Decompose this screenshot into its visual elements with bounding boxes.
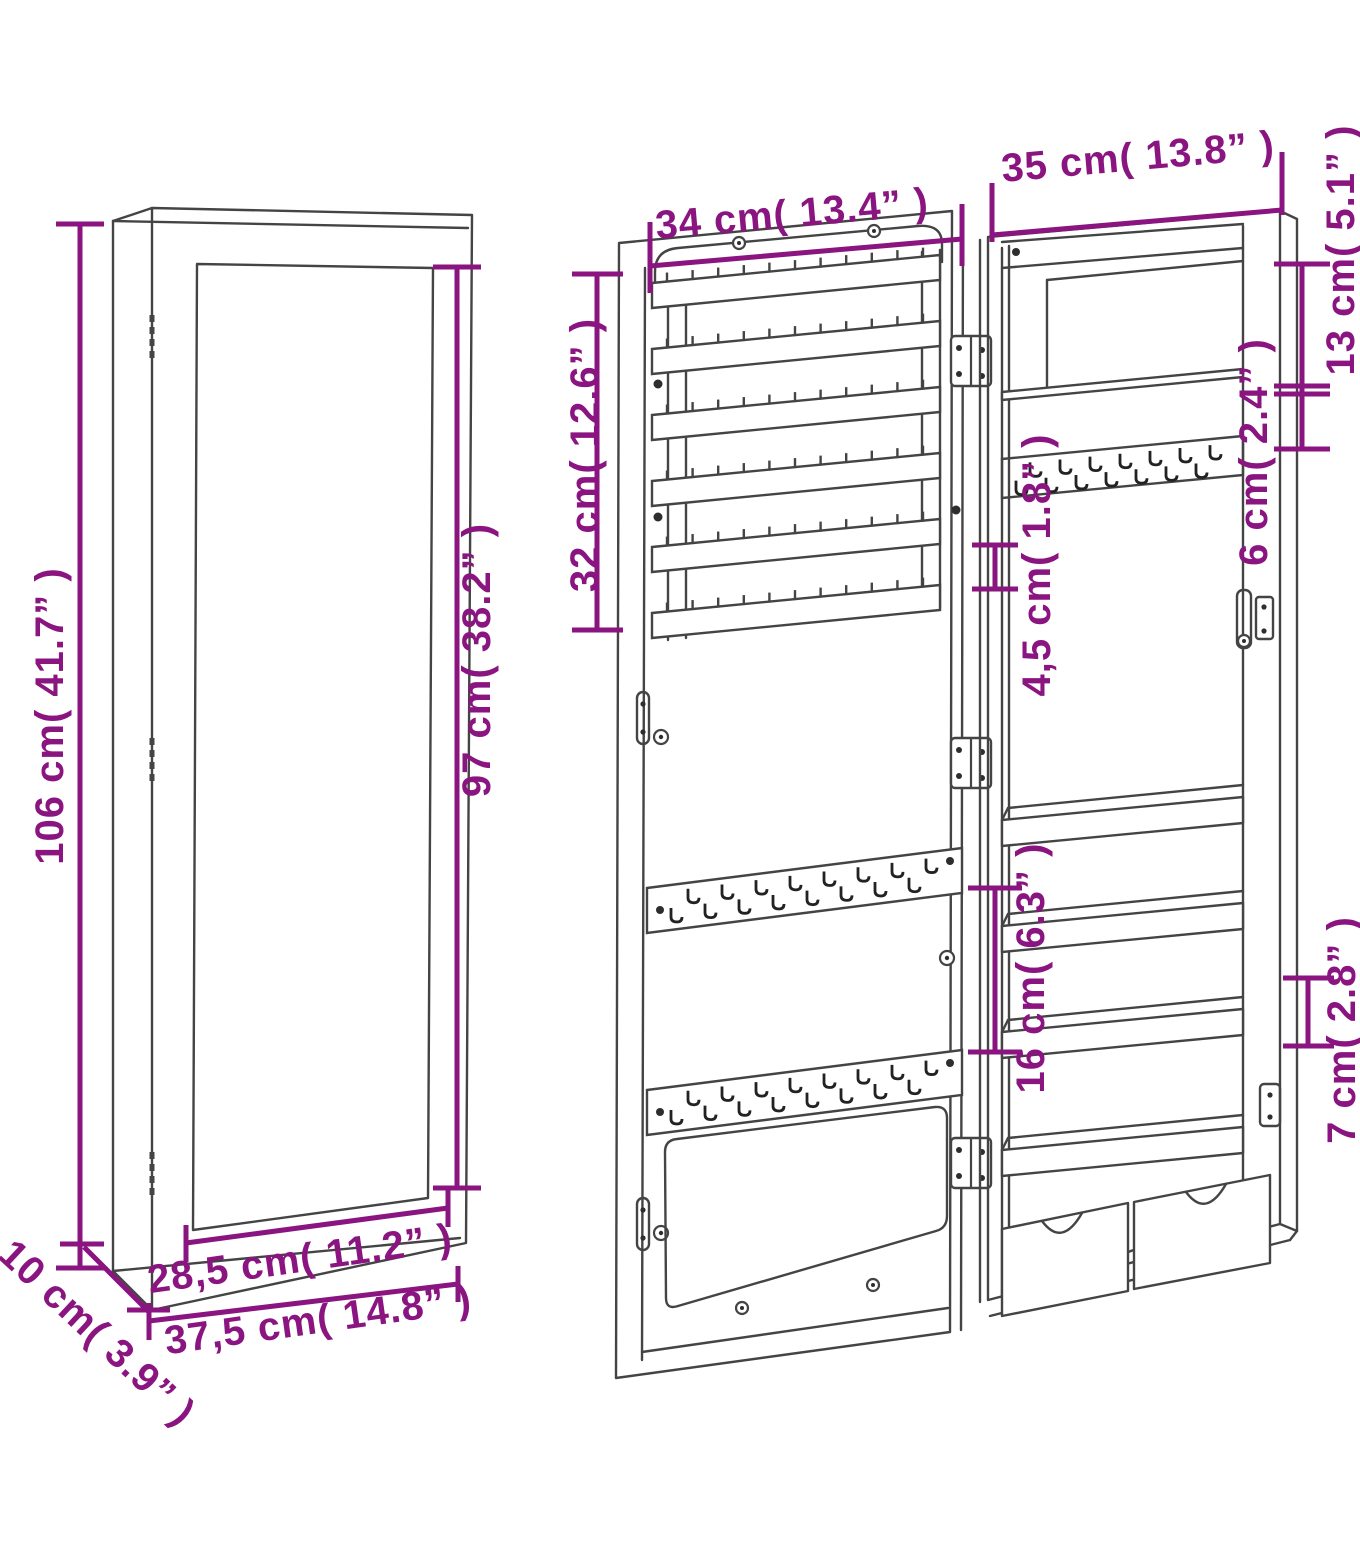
dimension-label-overall-height: 106 cm( 41.7” ) [30, 567, 70, 864]
earring-rack-rails [668, 250, 940, 640]
cabinet-front-face [152, 208, 472, 1310]
screw-icon [654, 380, 663, 389]
latch-lock [1260, 1084, 1280, 1126]
screw-icon [952, 506, 961, 515]
screw-icon [946, 1059, 954, 1067]
dimension-label-bottom-shelf: 7 cm( 2.8” ) [1322, 916, 1360, 1144]
earring-bar-rack [652, 248, 940, 638]
screw-icon [946, 857, 954, 865]
closed-cabinet-view [113, 208, 472, 1310]
dimension-label-shelf-gap: 6 cm( 2.4” ) [1234, 338, 1274, 566]
drawers [1002, 1175, 1270, 1316]
screw-icon [654, 513, 663, 522]
screw-icon [656, 906, 664, 914]
dimension-label-top-compartment: 13 cm( 5.1” ) [1321, 125, 1360, 376]
dimension-label-mirror-height: 97 cm( 38.2” ) [457, 523, 497, 797]
screw-icon [656, 1108, 664, 1116]
drawer-left [1002, 1203, 1128, 1316]
screw-icon [956, 747, 962, 753]
screw-icon [956, 1147, 962, 1153]
door-bottom-panel [665, 1107, 947, 1307]
dimension-label-hook-clearance: 4,5 cm( 1.8” ) [1017, 433, 1057, 696]
dimension-label-door-rack-height: 32 cm( 12.6” ) [565, 318, 605, 592]
dimension-label-shelf-spacing: 16 cm( 6.3” ) [1011, 843, 1051, 1094]
screw-icon [956, 371, 962, 377]
drawer-right [1134, 1175, 1270, 1289]
screw-icon [956, 773, 962, 779]
screw-icon [1012, 248, 1020, 256]
screw-icon [956, 1173, 962, 1179]
screw-icon [956, 345, 962, 351]
top-shelf [1002, 369, 1243, 400]
mirror-panel [193, 264, 433, 1230]
